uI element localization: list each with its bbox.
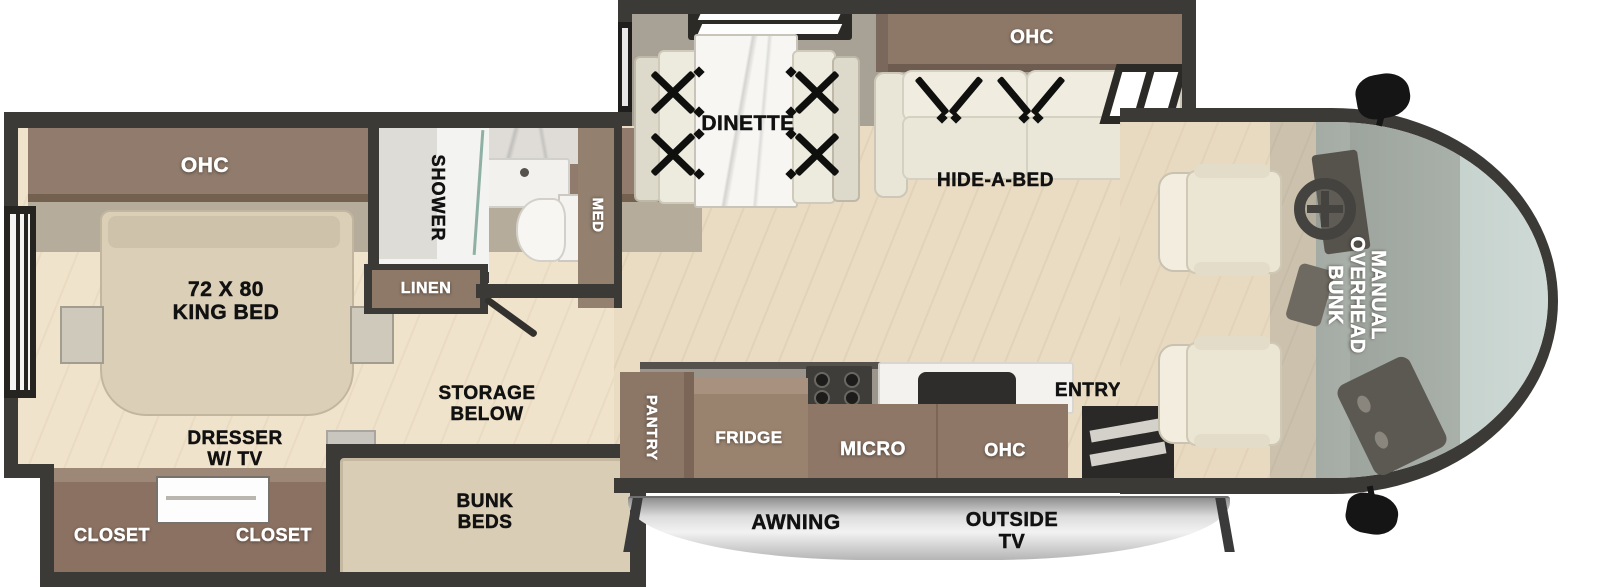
rv-floorplan: OHC 72 X 80KING BED DRESSERW/ TV CLOSET … bbox=[0, 0, 1600, 587]
toilet bbox=[516, 198, 566, 262]
fridge-label: FRIDGE bbox=[689, 424, 809, 452]
bedroom-ohc-label: OHC bbox=[130, 146, 280, 186]
closet-right-label: CLOSET bbox=[222, 524, 326, 548]
closet-left-label: CLOSET bbox=[60, 524, 164, 548]
bunk-beds-label: BUNKBEDS bbox=[400, 490, 570, 536]
stove bbox=[806, 366, 872, 408]
pantry-label: PANTRY bbox=[631, 378, 671, 478]
dresser-tv bbox=[156, 476, 270, 524]
nightstand-left bbox=[60, 306, 104, 364]
slideout-ohc-label: OHC bbox=[972, 24, 1092, 52]
hide-a-bed-strap-v bbox=[998, 74, 1064, 122]
med-label: MED bbox=[577, 165, 617, 265]
overhead-bunk-label: MANUALOVERHEADBUNK bbox=[1253, 189, 1459, 401]
slideout-left-window bbox=[618, 22, 632, 112]
med-wall-edge bbox=[614, 126, 622, 308]
linen-label: LINEN bbox=[366, 277, 486, 301]
hide-a-bed-label: HIDE-A-BED bbox=[908, 168, 1083, 194]
hide-a-bed-strap-v bbox=[916, 74, 982, 122]
micro-label: MICRO bbox=[813, 436, 933, 464]
bedroom-window bbox=[4, 206, 36, 398]
top-wall bbox=[4, 112, 620, 128]
bath-bottom-wall bbox=[476, 284, 618, 298]
exterior-cutout bbox=[0, 478, 40, 587]
shower-label: SHOWER bbox=[407, 138, 467, 258]
dinette-label: DINETTE bbox=[678, 110, 818, 138]
bottom-rear-wall bbox=[40, 572, 646, 587]
kitchen-ohc-label: OHC bbox=[945, 437, 1065, 465]
rear-step-wall bbox=[40, 464, 54, 587]
king-bed-label: 72 X 80KING BED bbox=[120, 270, 332, 334]
outside-tv-label: OUTSIDETV bbox=[930, 506, 1094, 558]
slideout-top-wall bbox=[618, 0, 1196, 14]
storage-below-label: STORAGEBELOW bbox=[400, 382, 574, 428]
dresser-label: DRESSERW/ TV bbox=[140, 430, 330, 470]
nightstand-right bbox=[350, 306, 394, 364]
awning-label: AWNING bbox=[716, 508, 876, 538]
